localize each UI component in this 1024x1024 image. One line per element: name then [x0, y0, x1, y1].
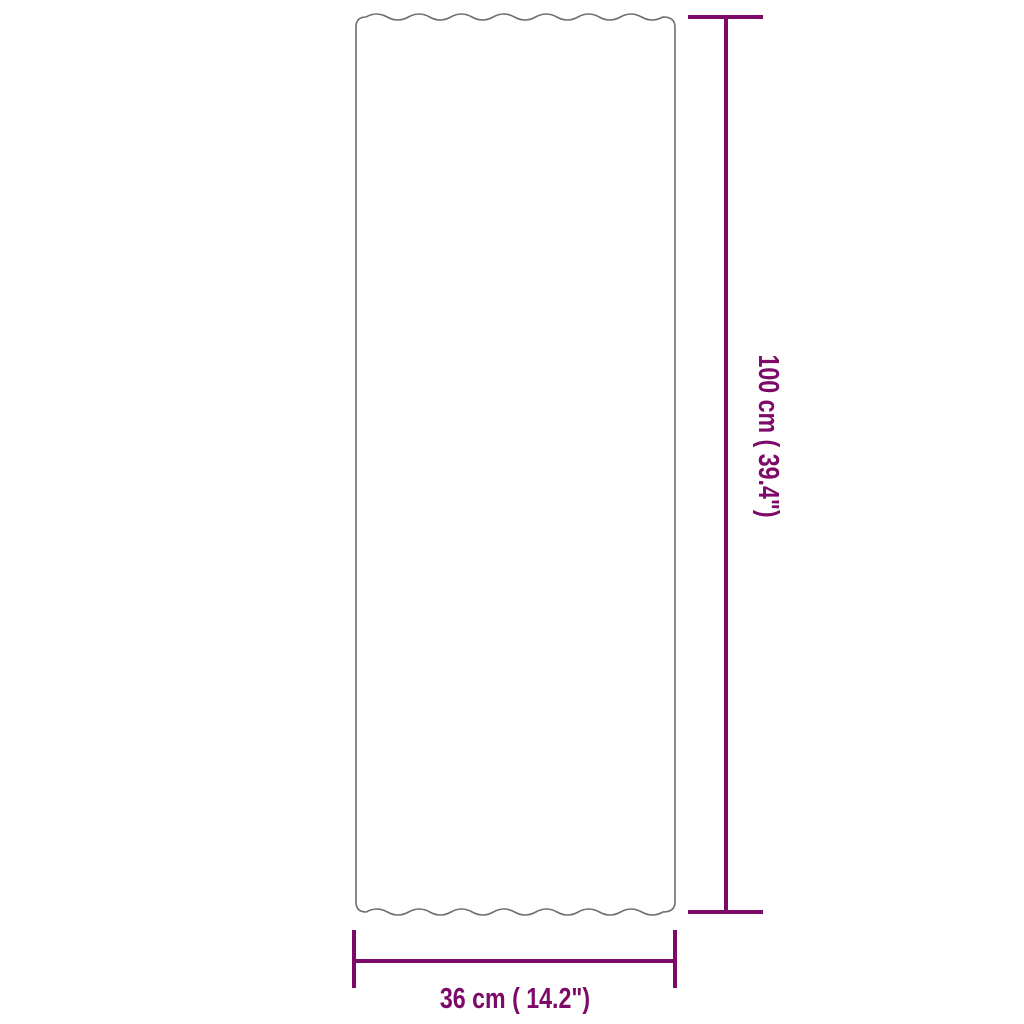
height-dimension-label: 100 cm ( 39.4") [752, 354, 785, 517]
height-dimension-line [688, 17, 763, 912]
width-dimension-line [354, 930, 675, 988]
width-dimension-label: 36 cm ( 14.2") [440, 981, 590, 1014]
panel-outline [356, 14, 675, 915]
diagram-canvas: 100 cm ( 39.4") 36 cm ( 14.2") [0, 0, 1024, 1024]
product-dimension-diagram: 100 cm ( 39.4") 36 cm ( 14.2") [0, 0, 1024, 1024]
